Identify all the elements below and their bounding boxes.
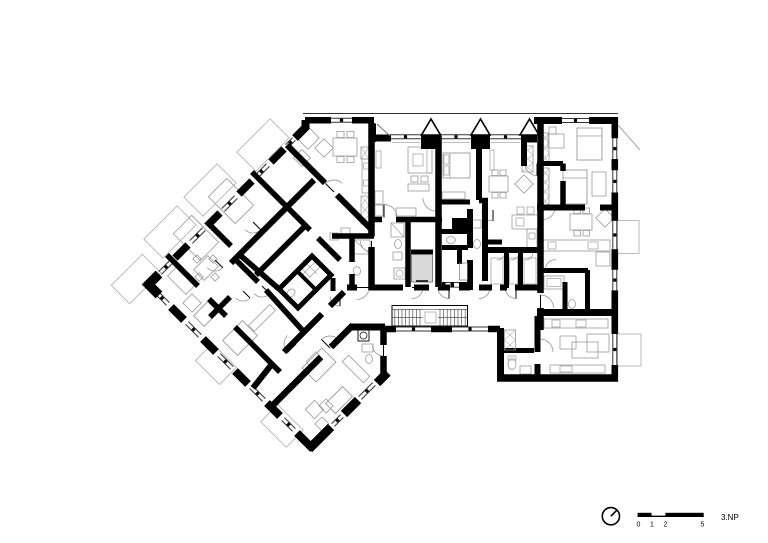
svg-text:1: 1: [650, 522, 654, 529]
svg-text:5: 5: [701, 522, 705, 529]
svg-text:2: 2: [664, 522, 668, 529]
svg-text:3.NP: 3.NP: [721, 513, 739, 522]
svg-text:0: 0: [637, 522, 641, 529]
